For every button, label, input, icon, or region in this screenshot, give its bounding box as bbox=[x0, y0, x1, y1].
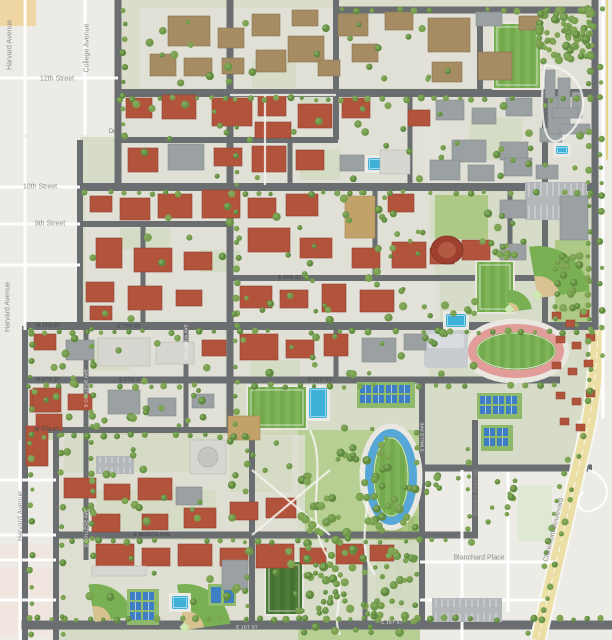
map-canvas[interactable] bbox=[0, 0, 612, 640]
campus-map[interactable]: Harvard AvenueCollege Avenue12th Street1… bbox=[0, 0, 612, 640]
